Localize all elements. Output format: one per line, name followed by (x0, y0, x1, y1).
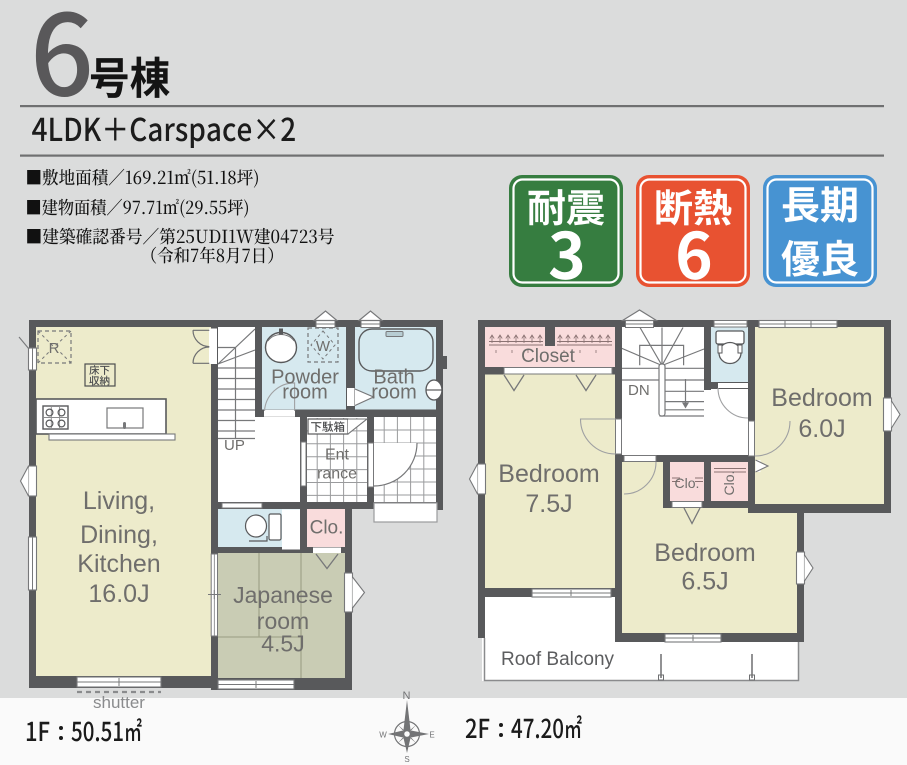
svg-text:room: room (371, 382, 417, 404)
svg-text:S: S (404, 755, 409, 764)
svg-text:6.5J: 6.5J (681, 568, 728, 596)
svg-text:6.0J: 6.0J (798, 415, 845, 443)
svg-text:rance: rance (317, 466, 357, 483)
svg-text:Roof Balcony: Roof Balcony (501, 649, 615, 670)
svg-text:Clo.: Clo. (721, 471, 737, 496)
svg-text:Bedroom: Bedroom (771, 384, 872, 412)
svg-text:UP: UP (224, 437, 245, 454)
svg-text:W: W (316, 338, 331, 355)
svg-text:W: W (379, 731, 387, 740)
svg-text:4.5J: 4.5J (261, 631, 304, 657)
svg-text:shutter: shutter (93, 693, 145, 712)
svg-text:Japanese: Japanese (233, 582, 333, 608)
svg-text:Living,: Living, (83, 487, 155, 515)
svg-text:Clo.: Clo. (675, 475, 700, 491)
svg-text:room: room (282, 382, 328, 404)
svg-text:Bedroom: Bedroom (498, 460, 599, 488)
svg-text:Closet: Closet (521, 346, 576, 367)
svg-text:Kitchen: Kitchen (77, 550, 160, 578)
svg-text:Dining,: Dining, (80, 521, 158, 549)
svg-text:16.0J: 16.0J (88, 580, 149, 608)
svg-text:E: E (429, 731, 434, 740)
svg-text:N: N (403, 690, 411, 702)
svg-text:Clo.: Clo. (310, 518, 344, 539)
svg-text:Ent: Ent (325, 447, 350, 464)
svg-text:7.5J: 7.5J (525, 490, 572, 518)
svg-text:DN: DN (628, 382, 650, 399)
svg-text:Bedroom: Bedroom (654, 539, 755, 567)
svg-text:R: R (49, 340, 60, 357)
